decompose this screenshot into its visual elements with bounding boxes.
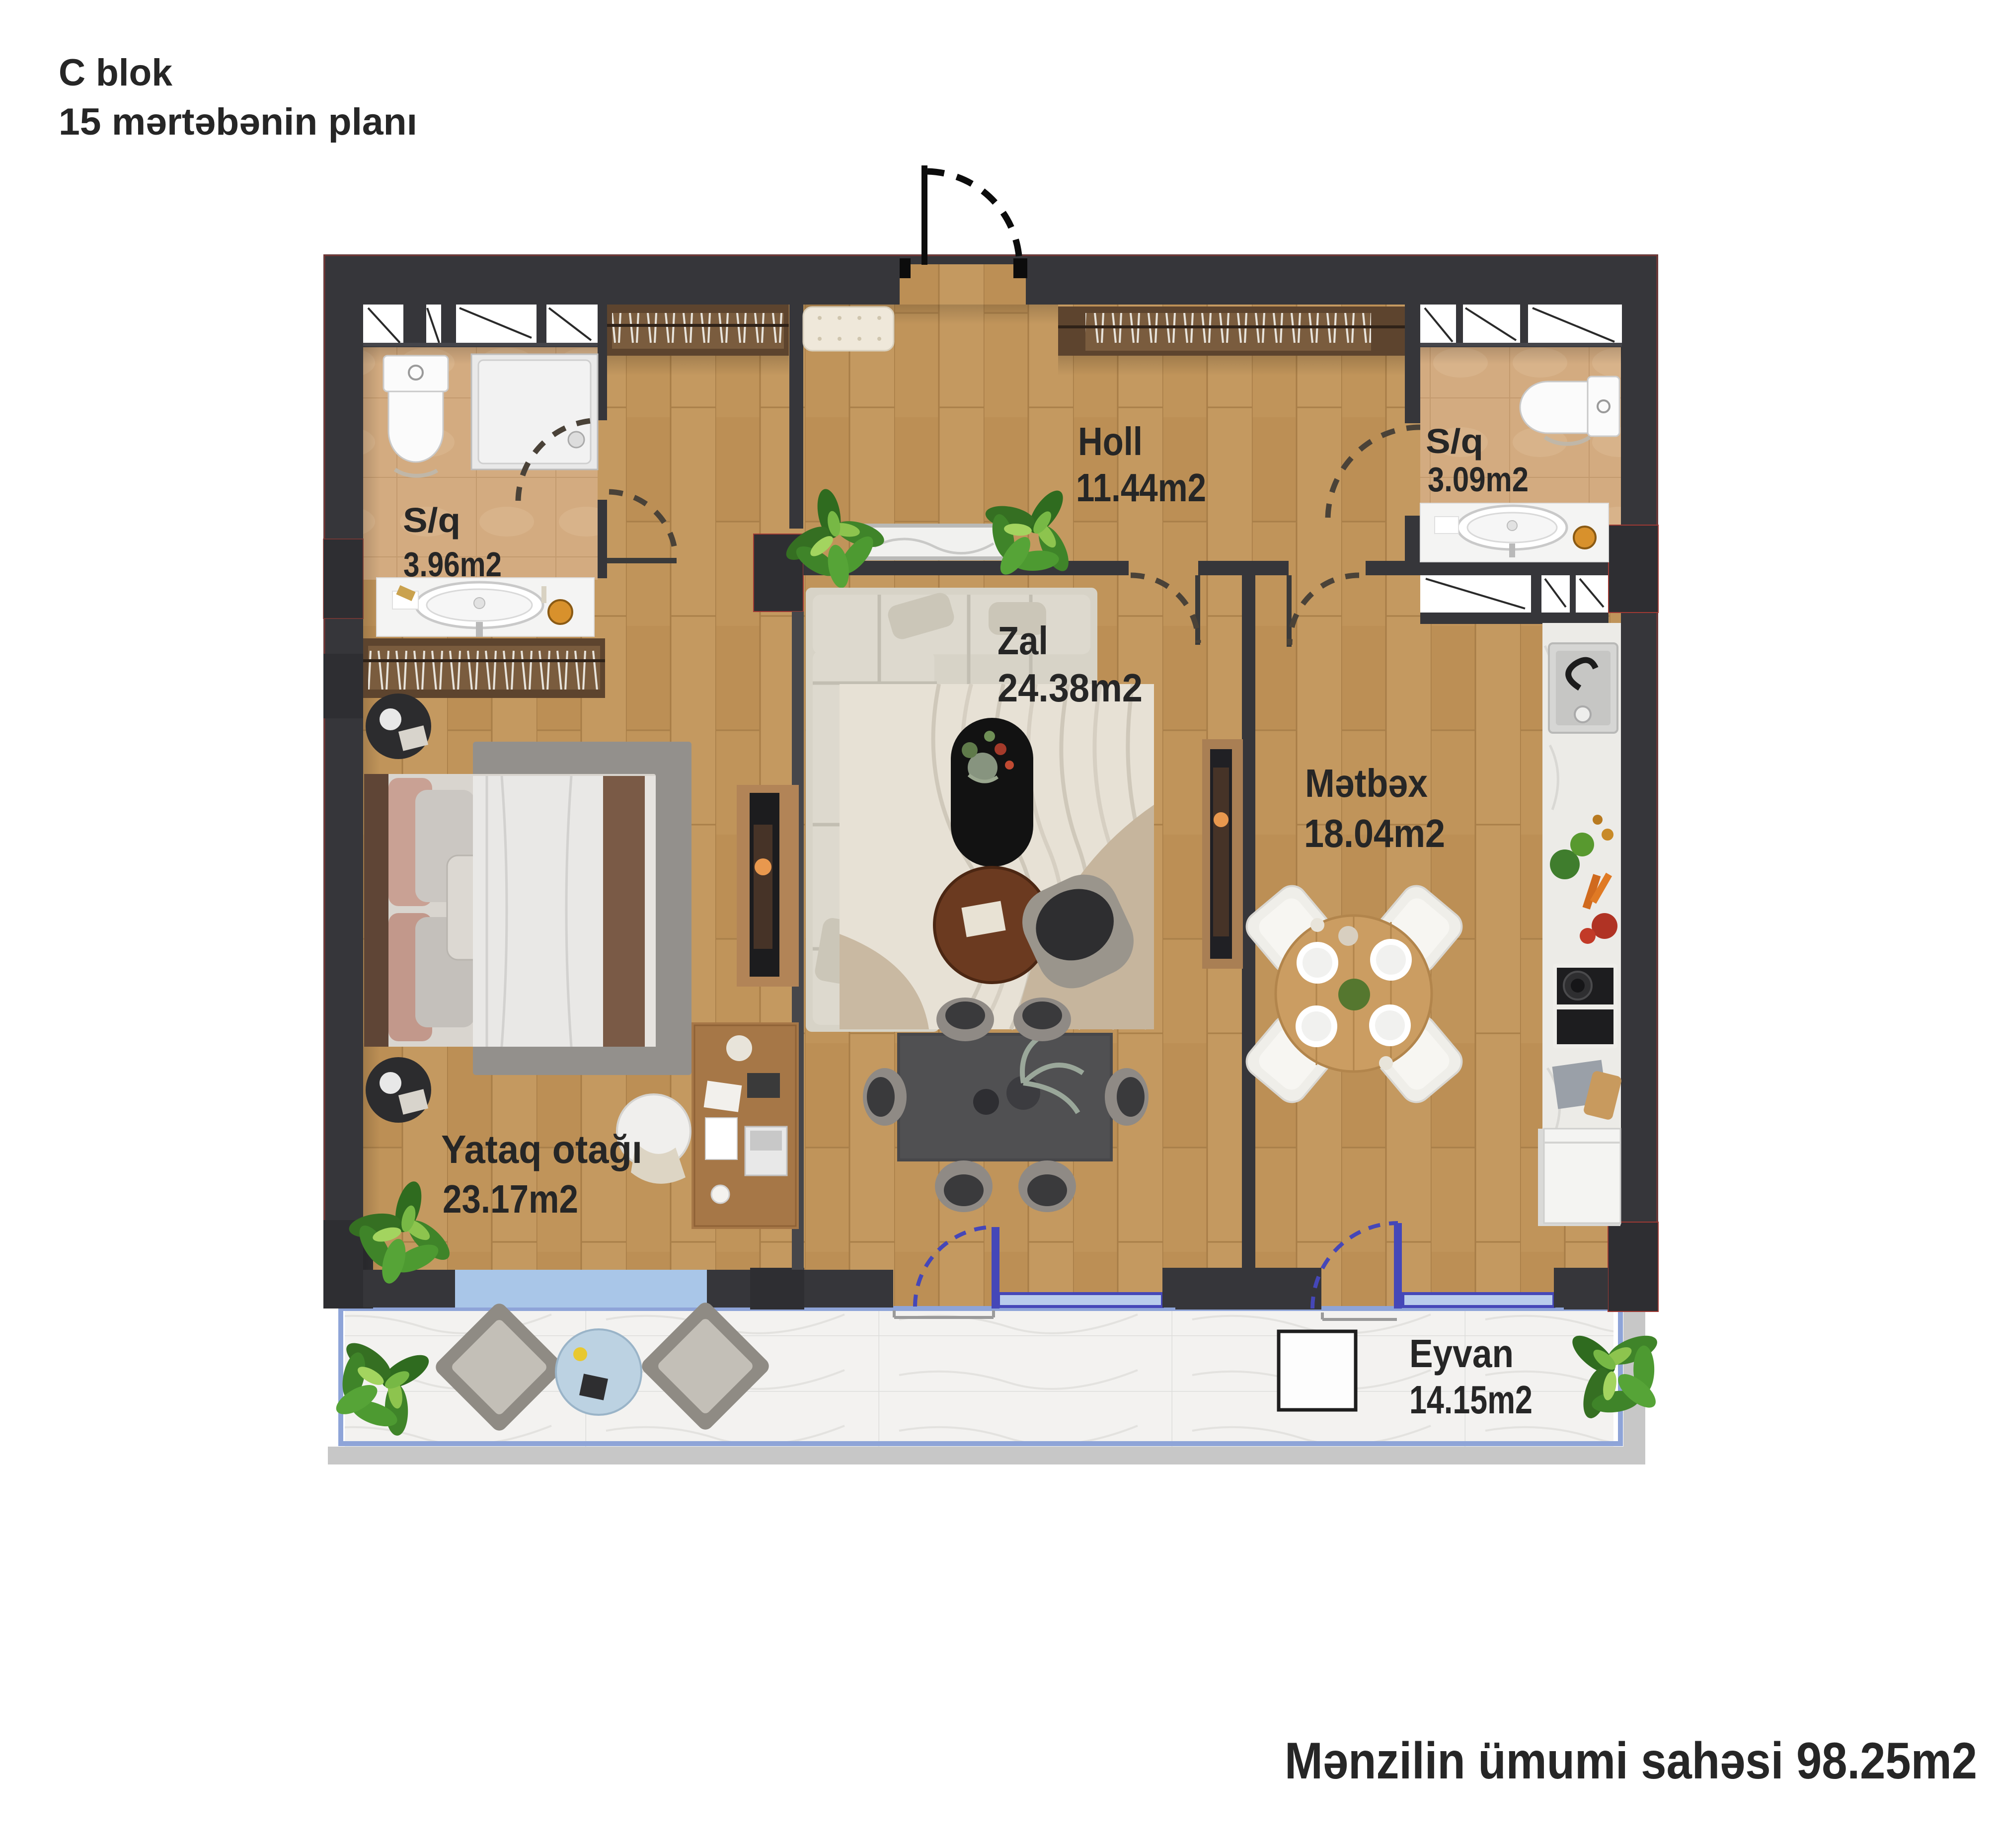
- svg-text:23.17m2: 23.17m2: [443, 1177, 578, 1221]
- svg-text:Mənzilin ümumi sahəsi 98.25m2: Mənzilin ümumi sahəsi 98.25m2: [1285, 1732, 1977, 1790]
- svg-text:24.38m2: 24.38m2: [997, 666, 1143, 710]
- svg-text:C blok: C blok: [59, 52, 173, 94]
- svg-text:Zal: Zal: [997, 618, 1048, 663]
- svg-text:Eyvan: Eyvan: [1409, 1331, 1514, 1376]
- svg-text:Yataq otağı: Yataq otağı: [441, 1127, 642, 1171]
- svg-text:Holl: Holl: [1078, 419, 1143, 463]
- svg-text:3.96m2: 3.96m2: [403, 545, 502, 584]
- svg-text:3.09m2: 3.09m2: [1428, 460, 1529, 499]
- svg-text:S/q: S/q: [1426, 422, 1483, 461]
- svg-text:Mətbəx: Mətbəx: [1305, 761, 1428, 805]
- svg-text:S/q: S/q: [403, 501, 460, 539]
- svg-text:11.44m2: 11.44m2: [1076, 465, 1206, 510]
- svg-text:15 mərtəbənin planı: 15 mərtəbənin planı: [59, 101, 417, 143]
- svg-text:14.15m2: 14.15m2: [1409, 1378, 1533, 1422]
- svg-text:18.04m2: 18.04m2: [1304, 811, 1445, 855]
